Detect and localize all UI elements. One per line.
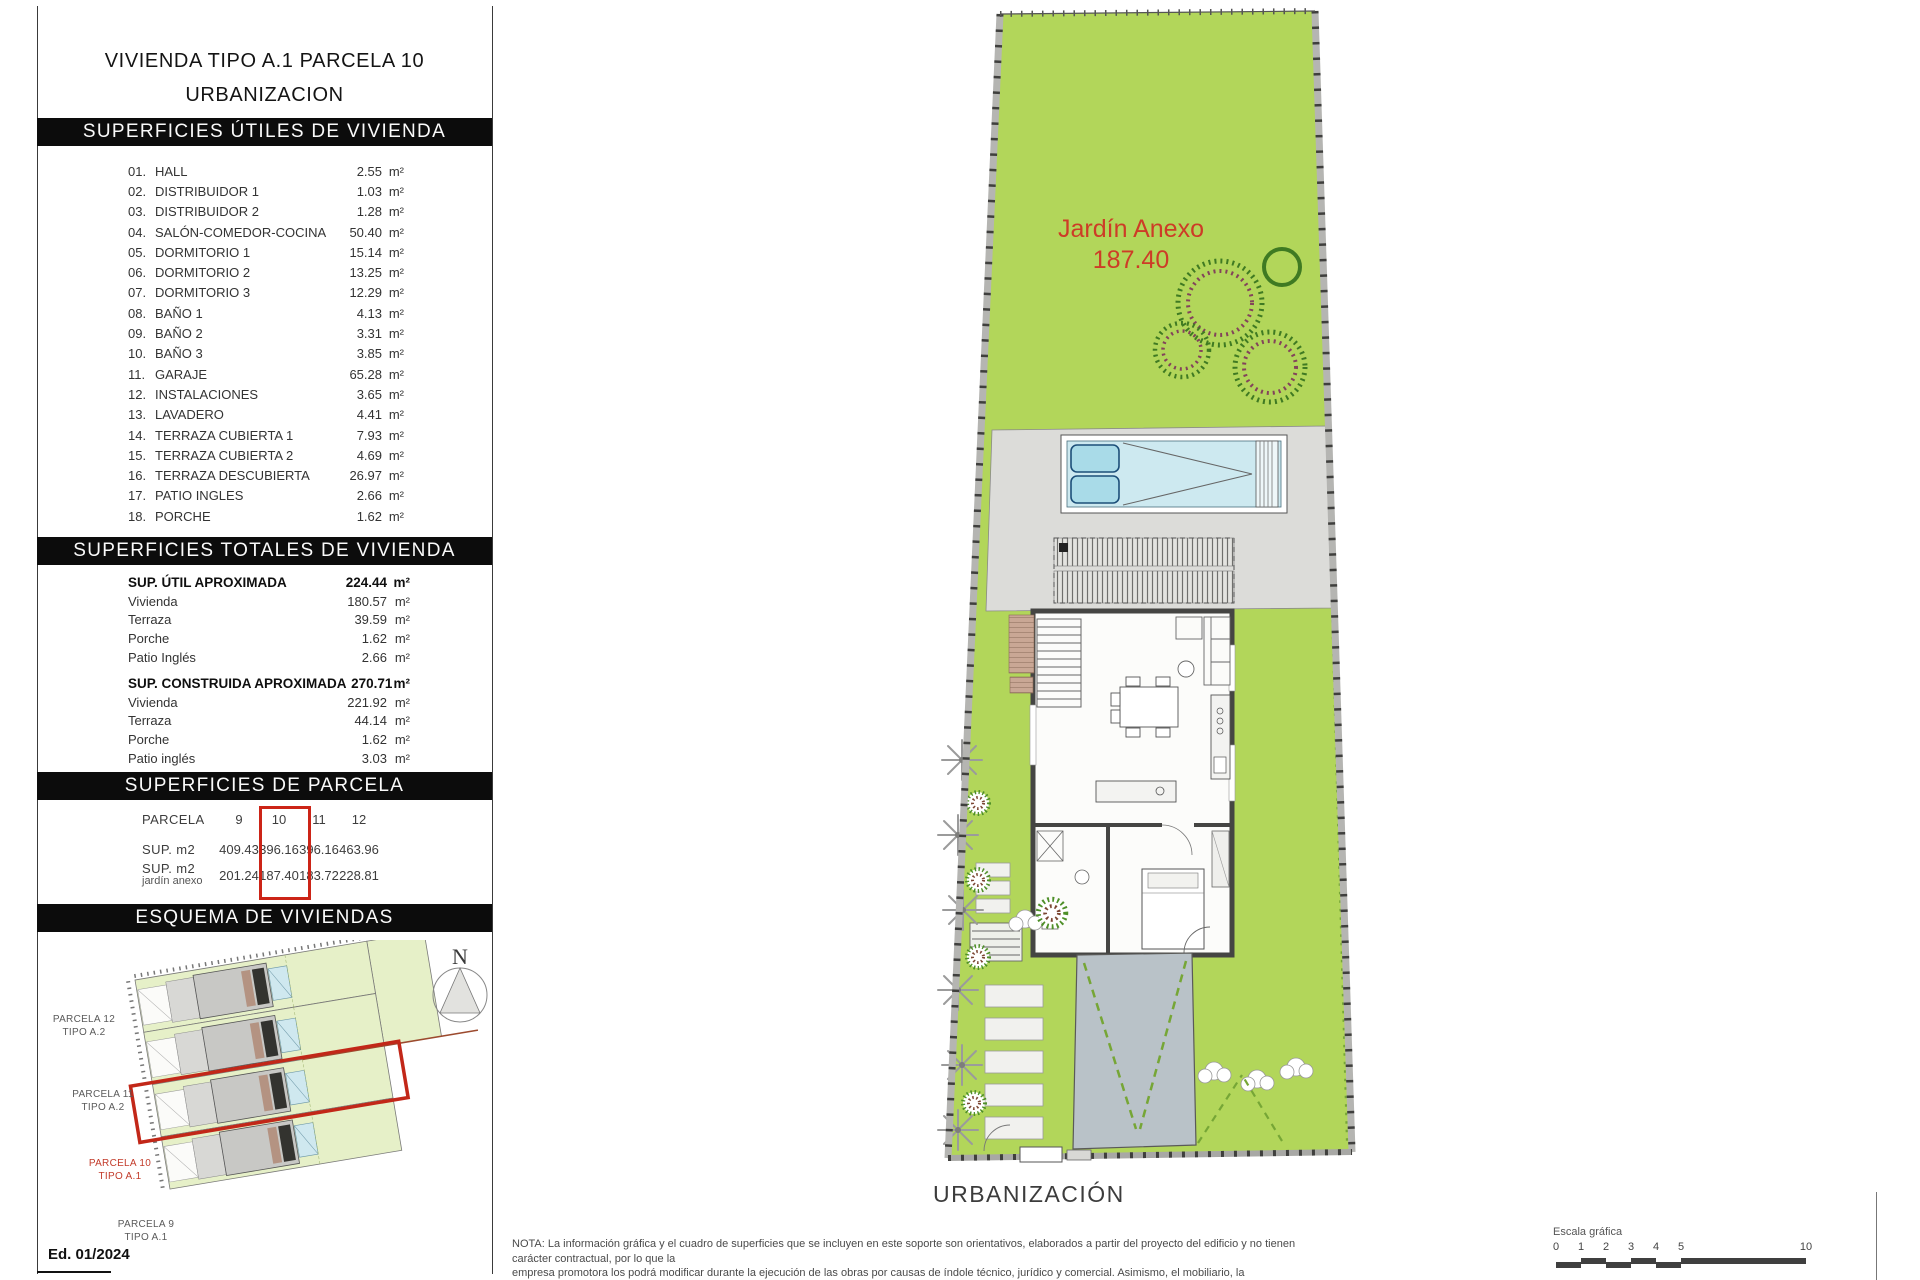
row-value: 50.40 xyxy=(328,225,382,240)
row-value: 2.66 xyxy=(327,650,387,665)
row-unit: m² xyxy=(387,594,410,609)
scale-tick: 5 xyxy=(1678,1241,1684,1253)
useful-areas-table: 01. HALL 2.55 m² 02. DISTRIBUIDOR 1 1.03… xyxy=(128,161,404,526)
area-row: 08. BAÑO 1 4.13 m² xyxy=(128,303,404,323)
total-unit: m² xyxy=(392,676,410,691)
row-unit: m² xyxy=(382,468,404,483)
row-label: PORCHE xyxy=(155,509,328,524)
north-compass: N xyxy=(424,946,496,1026)
scale-tick: 1 xyxy=(1578,1241,1584,1253)
garden-bush xyxy=(1038,899,1066,927)
palm-tree xyxy=(938,815,978,855)
plan-caption: URBANIZACIÓN xyxy=(933,1181,1125,1208)
row-unit: m² xyxy=(382,346,404,361)
total-sub-row: Porche 1.62 m² xyxy=(128,730,410,749)
row-value: 3.31 xyxy=(328,326,382,341)
row-unit: m² xyxy=(382,367,404,382)
row-label: DORMITORIO 2 xyxy=(155,265,328,280)
row-number: 04. xyxy=(128,225,155,240)
total-sub-row: Terraza 44.14 m² xyxy=(128,712,410,731)
plan-sheet: VIVIENDA TIPO A.1 PARCELA 10 URBANIZACIO… xyxy=(0,0,1920,1280)
area-row: 07. DORMITORIO 3 12.29 m² xyxy=(128,283,404,303)
wood-deck xyxy=(1010,677,1033,693)
row-label: Terraza xyxy=(128,713,327,728)
total-header-row: SUP. CONSTRUIDA APROXIMADA 270.71 m² xyxy=(128,674,410,693)
page-title: VIVIENDA TIPO A.1 PARCELA 10 URBANIZACIO… xyxy=(37,44,492,112)
row-number: 12. xyxy=(128,387,155,402)
row-number: 01. xyxy=(128,164,155,179)
total-useful-area-block: SUP. ÚTIL APROXIMADA 224.44 m² Vivienda … xyxy=(128,573,410,667)
garden-bush xyxy=(967,869,989,891)
parcela-garden-surface: 201.24 xyxy=(219,864,259,883)
area-row: 13. LAVADERO 4.41 m² xyxy=(128,405,404,425)
garden-annotation-area: 187.40 xyxy=(1031,245,1231,276)
row-value: 1.62 xyxy=(328,509,382,524)
sup-m2-row-label: SUP. m2 xyxy=(142,842,195,857)
row-label: DISTRIBUIDOR 1 xyxy=(155,184,328,199)
row-unit: m² xyxy=(387,650,410,665)
area-row: 12. INSTALACIONES 3.65 m² xyxy=(128,384,404,404)
parcela-surface: 409.43 xyxy=(219,842,259,864)
wardrobe xyxy=(1212,831,1229,887)
row-number: 08. xyxy=(128,306,155,321)
row-value: 13.25 xyxy=(328,265,382,280)
row-unit: m² xyxy=(382,245,404,260)
row-label: TERRAZA CUBIERTA 2 xyxy=(155,448,328,463)
row-label: Porche xyxy=(128,631,327,646)
area-row: 14. TERRAZA CUBIERTA 1 7.93 m² xyxy=(128,425,404,445)
row-label: BAÑO 2 xyxy=(155,326,328,341)
parcela-number: 9 xyxy=(219,812,259,842)
row-unit: m² xyxy=(382,428,404,443)
sidebar-left-border xyxy=(37,6,38,1274)
scheme-parcel-label: PARCELA 9 TIPO A.1 xyxy=(98,1219,194,1244)
row-unit: m² xyxy=(382,225,404,240)
row-label: Terraza xyxy=(128,612,327,627)
parcel-type: TIPO A.1 xyxy=(98,1232,194,1245)
row-value: 3.85 xyxy=(328,346,382,361)
scale-tick: 10 xyxy=(1800,1241,1812,1253)
row-unit: m² xyxy=(382,184,404,199)
row-number: 13. xyxy=(128,407,155,422)
section-heading-esquema: ESQUEMA DE VIVIENDAS xyxy=(37,904,492,932)
row-label: TERRAZA DESCUBIERTA xyxy=(155,468,328,483)
total-sub-row: Porche 1.62 m² xyxy=(128,629,410,648)
sup-m2-jardin-row-label: SUP. m2 jardín anexo xyxy=(142,862,203,888)
total-sub-row: Vivienda 180.57 m² xyxy=(128,592,410,611)
swimming-pool xyxy=(1061,435,1287,513)
row-label: TERRAZA CUBIERTA 1 xyxy=(155,428,328,443)
gate-post xyxy=(1067,1150,1091,1160)
graphic-scale-ticks: 01234510 xyxy=(1550,1241,1890,1254)
row-number: 09. xyxy=(128,326,155,341)
area-row: 04. SALÓN-COMEDOR-COCINA 50.40 m² xyxy=(128,222,404,242)
garden-annotation: Jardín Anexo 187.40 xyxy=(1031,214,1231,276)
row-label: Porche xyxy=(128,732,327,747)
row-label: GARAJE xyxy=(155,367,328,382)
row-label: LAVADERO xyxy=(155,407,328,422)
row-label: HALL xyxy=(155,164,328,179)
row-number: 18. xyxy=(128,509,155,524)
total-useful-rows: Vivienda 180.57 m² Terraza 39.59 m² Porc… xyxy=(128,592,410,667)
row-unit: m² xyxy=(387,732,410,747)
row-number: 16. xyxy=(128,468,155,483)
row-number: 06. xyxy=(128,265,155,280)
total-label: SUP. ÚTIL APROXIMADA xyxy=(128,575,327,590)
parcela-surface: 463.96 xyxy=(339,842,379,864)
kitchen-island xyxy=(1096,781,1176,802)
row-number: 15. xyxy=(128,448,155,463)
scale-segment xyxy=(1631,1258,1656,1264)
row-value: 15.14 xyxy=(328,245,382,260)
row-value: 2.55 xyxy=(328,164,382,179)
row-unit: m² xyxy=(382,306,404,321)
total-sub-row: Vivienda 221.92 m² xyxy=(128,693,410,712)
row-number: 07. xyxy=(128,285,155,300)
parcel-type: TIPO A.2 xyxy=(36,1027,132,1040)
scale-tick: 2 xyxy=(1603,1241,1609,1253)
row-unit: m² xyxy=(387,713,410,728)
scale-segment xyxy=(1556,1262,1581,1268)
row-unit: m² xyxy=(382,387,404,402)
garden-bush xyxy=(967,946,989,968)
row-label: PATIO INGLES xyxy=(155,488,328,503)
graphic-scale: Escala gráfica 01234510 xyxy=(1550,1226,1890,1280)
row-unit: m² xyxy=(382,407,404,422)
legal-note: NOTA: La información gráfica y el cuadro… xyxy=(512,1237,1302,1280)
row-unit: m² xyxy=(387,751,410,766)
total-header-row: SUP. ÚTIL APROXIMADA 224.44 m² xyxy=(128,573,410,592)
row-value: 4.41 xyxy=(328,407,382,422)
sup-m2-label: SUP. m2 xyxy=(142,861,195,876)
highlighted-parcela-box xyxy=(259,806,311,900)
row-label: DORMITORIO 1 xyxy=(155,245,328,260)
row-number: 11. xyxy=(128,367,155,382)
north-letter: N xyxy=(452,946,468,969)
area-row: 09. BAÑO 2 3.31 m² xyxy=(128,323,404,343)
row-number: 02. xyxy=(128,184,155,199)
graphic-scale-label: Escala gráfica xyxy=(1553,1226,1622,1238)
jardin-anexo-sublabel: jardín anexo xyxy=(142,875,203,888)
row-value: 7.93 xyxy=(328,428,382,443)
compass-needle xyxy=(440,968,480,1013)
scale-tick: 3 xyxy=(1628,1241,1634,1253)
parcela-number: 12 xyxy=(339,812,379,842)
area-row: 03. DISTRIBUIDOR 2 1.28 m² xyxy=(128,202,404,222)
row-unit: m² xyxy=(382,164,404,179)
parcela-row-label: PARCELA xyxy=(142,812,205,827)
sidebar-right-border xyxy=(492,6,493,1274)
row-label: Patio Inglés xyxy=(128,650,327,665)
bed xyxy=(1142,869,1204,949)
scheme-parcel-label: PARCELA 10 TIPO A.1 xyxy=(72,1158,168,1183)
row-label: Vivienda xyxy=(128,594,327,609)
row-number: 17. xyxy=(128,488,155,503)
row-label: Vivienda xyxy=(128,695,327,710)
area-row: 18. PORCHE 1.62 m² xyxy=(128,506,404,526)
parcel-name: PARCELA 10 xyxy=(72,1158,168,1171)
row-number: 14. xyxy=(128,428,155,443)
total-value: 224.44 xyxy=(327,575,387,590)
garden-bush xyxy=(963,1092,985,1114)
total-sub-row: Terraza 39.59 m² xyxy=(128,611,410,630)
section-heading-totales: SUPERFICIES TOTALES DE VIVIENDA xyxy=(37,537,492,565)
total-unit: m² xyxy=(387,575,410,590)
side-table xyxy=(1178,661,1194,677)
page-title-line2: URBANIZACION xyxy=(37,78,492,112)
page-title-line1: VIVIENDA TIPO A.1 PARCELA 10 xyxy=(37,44,492,78)
row-number: 05. xyxy=(128,245,155,260)
row-value: 26.97 xyxy=(328,468,382,483)
legal-note-line: NOTA: La información gráfica y el cuadro… xyxy=(512,1237,1302,1266)
area-row: 01. HALL 2.55 m² xyxy=(128,161,404,181)
garden-annotation-title: Jardín Anexo xyxy=(1031,214,1231,245)
row-label: BAÑO 1 xyxy=(155,306,328,321)
area-row: 10. BAÑO 3 3.85 m² xyxy=(128,344,404,364)
row-value: 1.03 xyxy=(328,184,382,199)
total-built-area-block: SUP. CONSTRUIDA APROXIMADA 270.71 m² Viv… xyxy=(128,674,410,768)
area-row: 02. DISTRIBUIDOR 1 1.03 m² xyxy=(128,181,404,201)
row-unit: m² xyxy=(387,695,410,710)
area-row: 16. TERRAZA DESCUBIERTA 26.97 m² xyxy=(128,465,404,485)
row-value: 39.59 xyxy=(327,612,387,627)
site-plan-drawing xyxy=(930,5,1375,1170)
edition-stamp: Ed. 01/2024 xyxy=(48,1246,130,1263)
row-label: Patio inglés xyxy=(128,751,327,766)
total-sub-row: Patio inglés 3.03 m² xyxy=(128,749,410,768)
area-row: 05. DORMITORIO 1 15.14 m² xyxy=(128,242,404,262)
row-unit: m² xyxy=(387,612,410,627)
scale-segment xyxy=(1581,1258,1606,1264)
row-value: 3.03 xyxy=(327,751,387,766)
area-row: 06. DORMITORIO 2 13.25 m² xyxy=(128,262,404,282)
area-row: 15. TERRAZA CUBIERTA 2 4.69 m² xyxy=(128,445,404,465)
parcel-type: TIPO A.1 xyxy=(72,1171,168,1184)
row-label: SALÓN-COMEDOR-COCINA xyxy=(155,225,328,240)
row-value: 65.28 xyxy=(328,367,382,382)
row-value: 1.62 xyxy=(327,732,387,747)
row-unit: m² xyxy=(382,448,404,463)
row-value: 12.29 xyxy=(328,285,382,300)
row-unit: m² xyxy=(387,631,410,646)
area-row: 17. PATIO INGLES 2.66 m² xyxy=(128,486,404,506)
parcela-garden-surface: 228.81 xyxy=(339,864,379,883)
edition-underline xyxy=(37,1271,111,1273)
row-value: 221.92 xyxy=(327,695,387,710)
total-built-rows: Vivienda 221.92 m² Terraza 44.14 m² Porc… xyxy=(128,693,410,768)
graphic-scale-bar xyxy=(1550,1255,1890,1269)
row-label: DISTRIBUIDOR 2 xyxy=(155,204,328,219)
palm-tree xyxy=(938,1110,978,1150)
total-sub-row: Patio Inglés 2.66 m² xyxy=(128,648,410,667)
row-unit: m² xyxy=(382,204,404,219)
wood-deck xyxy=(1009,615,1034,673)
parcel-name: PARCELA 9 xyxy=(98,1219,194,1232)
entrance-gate xyxy=(1020,1147,1062,1162)
row-label: DORMITORIO 3 xyxy=(155,285,328,300)
row-number: 03. xyxy=(128,204,155,219)
scale-segment xyxy=(1606,1262,1631,1268)
row-number: 10. xyxy=(128,346,155,361)
row-value: 4.13 xyxy=(328,306,382,321)
parcel-type: TIPO A.2 xyxy=(55,1102,151,1115)
row-value: 44.14 xyxy=(327,713,387,728)
row-value: 180.57 xyxy=(327,594,387,609)
parcel-name: PARCELA 11 xyxy=(55,1089,151,1102)
row-label: INSTALACIONES xyxy=(155,387,328,402)
row-unit: m² xyxy=(382,265,404,280)
scale-segment xyxy=(1681,1258,1806,1264)
summary-sidebar: VIVIENDA TIPO A.1 PARCELA 10 URBANIZACIO… xyxy=(37,0,492,1280)
total-label: SUP. CONSTRUIDA APROXIMADA xyxy=(128,676,347,691)
scale-tick: 4 xyxy=(1653,1241,1659,1253)
kitchen-counter xyxy=(1211,695,1230,779)
scheme-parcel-label: PARCELA 11 TIPO A.2 xyxy=(55,1089,151,1114)
driveway-ramp xyxy=(1073,953,1196,1149)
palm-tree xyxy=(942,1045,982,1085)
row-label: BAÑO 3 xyxy=(155,346,328,361)
parcela-column: 12 463.96 228.81 xyxy=(339,812,379,883)
scale-tick: 0 xyxy=(1553,1241,1559,1253)
parcel-name: PARCELA 12 xyxy=(36,1014,132,1027)
total-value: 270.71 xyxy=(347,676,393,691)
row-unit: m² xyxy=(382,326,404,341)
row-value: 2.66 xyxy=(328,488,382,503)
row-value: 3.65 xyxy=(328,387,382,402)
row-unit: m² xyxy=(382,285,404,300)
parcela-column: 9 409.43 201.24 xyxy=(219,812,259,883)
row-value: 4.69 xyxy=(328,448,382,463)
page-border xyxy=(1876,1192,1877,1280)
scale-segment xyxy=(1656,1262,1681,1268)
row-unit: m² xyxy=(382,509,404,524)
scheme-parcel-label: PARCELA 12 TIPO A.2 xyxy=(36,1014,132,1039)
legal-note-line: empresa promotora los podrá modificar du… xyxy=(512,1266,1302,1280)
row-value: 1.62 xyxy=(327,631,387,646)
area-row: 11. GARAJE 65.28 m² xyxy=(128,364,404,384)
row-value: 1.28 xyxy=(328,204,382,219)
row-unit: m² xyxy=(382,488,404,503)
garden-bush xyxy=(967,792,989,814)
section-heading-utiles: SUPERFICIES ÚTILES DE VIVIENDA xyxy=(37,118,492,146)
section-heading-parcela: SUPERFICIES DE PARCELA xyxy=(37,772,492,800)
